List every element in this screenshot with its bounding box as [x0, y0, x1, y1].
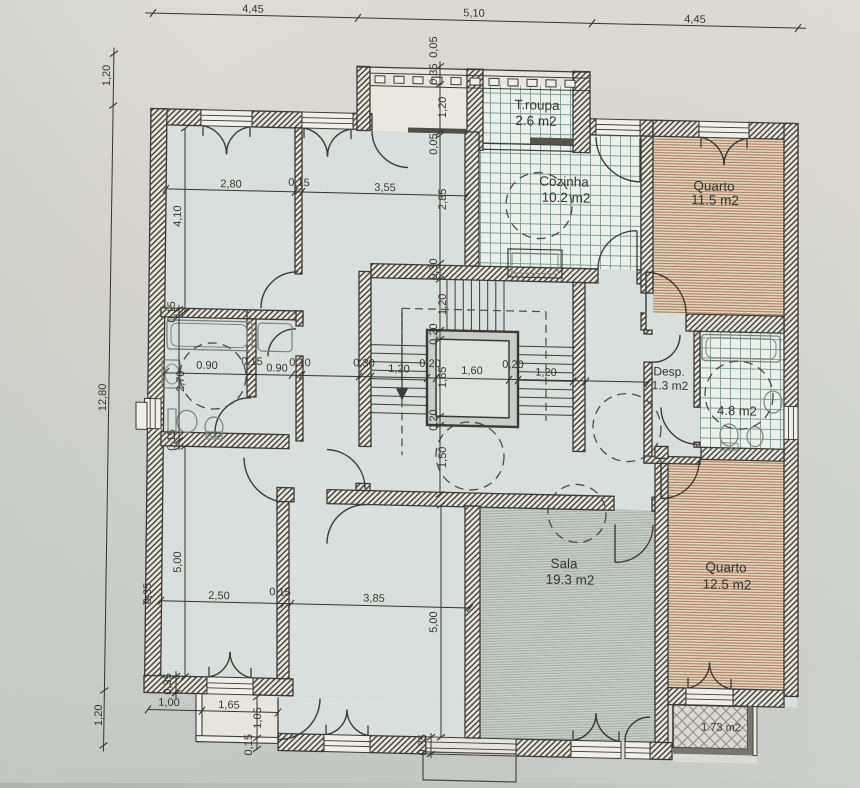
svg-text:3,85: 3,85	[363, 592, 384, 604]
svg-text:1,65: 1,65	[218, 699, 239, 711]
svg-text:1,20: 1,20	[535, 366, 556, 378]
svg-text:1,20: 1,20	[101, 65, 113, 87]
svg-text:5,10: 5,10	[463, 7, 484, 19]
svg-text:5,00: 5,00	[172, 551, 184, 573]
svg-text:0,15: 0,15	[166, 429, 178, 451]
svg-text:4,45: 4,45	[684, 13, 705, 25]
svg-text:3,55: 3,55	[374, 182, 395, 194]
svg-text:T.roupa: T.roupa	[514, 97, 560, 113]
svg-text:1,50: 1,50	[437, 446, 449, 468]
svg-text:5,00: 5,00	[428, 611, 440, 633]
svg-text:1,20: 1,20	[388, 363, 409, 375]
svg-text:4,10: 4,10	[172, 205, 184, 227]
svg-text:0,35: 0,35	[428, 63, 440, 85]
svg-text:1,60: 1,60	[461, 365, 482, 377]
svg-text:0,20: 0,20	[428, 323, 440, 345]
svg-text:Quarto: Quarto	[705, 559, 746, 575]
svg-text:Desp.: Desp.	[653, 364, 684, 379]
svg-text:0,20: 0,20	[428, 409, 440, 431]
svg-text:2,50: 2,50	[208, 590, 229, 602]
svg-text:0,15: 0,15	[166, 301, 178, 323]
svg-text:2.6 m2: 2.6 m2	[515, 113, 556, 129]
svg-text:Sala: Sala	[550, 556, 578, 572]
svg-text:0,15: 0,15	[241, 356, 262, 368]
svg-text:1.73 m2: 1.73 m2	[701, 721, 741, 734]
svg-text:0,05: 0,05	[428, 133, 440, 155]
svg-text:0,35: 0,35	[417, 734, 429, 756]
svg-text:0,30: 0,30	[353, 357, 374, 369]
svg-text:0.90: 0.90	[266, 362, 287, 374]
svg-text:10.2 m2: 10.2 m2	[542, 190, 591, 206]
svg-text:0,20: 0,20	[502, 359, 523, 371]
svg-text:2,80: 2,80	[220, 178, 241, 190]
svg-text:4,45: 4,45	[242, 3, 263, 15]
svg-text:2,85: 2,85	[437, 188, 449, 210]
svg-text:12.5 m2: 12.5 m2	[703, 576, 752, 592]
svg-text:1,05: 1,05	[252, 707, 264, 729]
svg-text:0,15: 0,15	[288, 177, 309, 189]
svg-text:0,20: 0,20	[419, 358, 440, 370]
svg-text:0,10: 0,10	[289, 357, 310, 369]
svg-text:19.3 m2: 19.3 m2	[546, 572, 595, 588]
svg-text:1,20: 1,20	[437, 293, 449, 315]
svg-text:0,15: 0,15	[269, 586, 290, 598]
svg-text:1,20: 1,20	[93, 704, 105, 726]
svg-text:4.8 m2: 4.8 m2	[717, 403, 757, 419]
svg-text:0,15: 0,15	[243, 734, 255, 756]
svg-text:12,80: 12,80	[97, 383, 109, 411]
svg-text:0,30: 0,30	[428, 258, 440, 280]
svg-text:0,35: 0,35	[142, 583, 154, 605]
svg-text:0,05: 0,05	[428, 36, 440, 58]
svg-text:1.3 m2: 1.3 m2	[652, 378, 689, 393]
svg-text:1,20: 1,20	[437, 96, 449, 118]
svg-text:11.5 m2: 11.5 m2	[691, 192, 739, 208]
svg-text:0.90: 0.90	[196, 360, 217, 372]
svg-text:0,35: 0,35	[162, 673, 174, 695]
svg-text:Cozinha: Cozinha	[539, 174, 589, 190]
